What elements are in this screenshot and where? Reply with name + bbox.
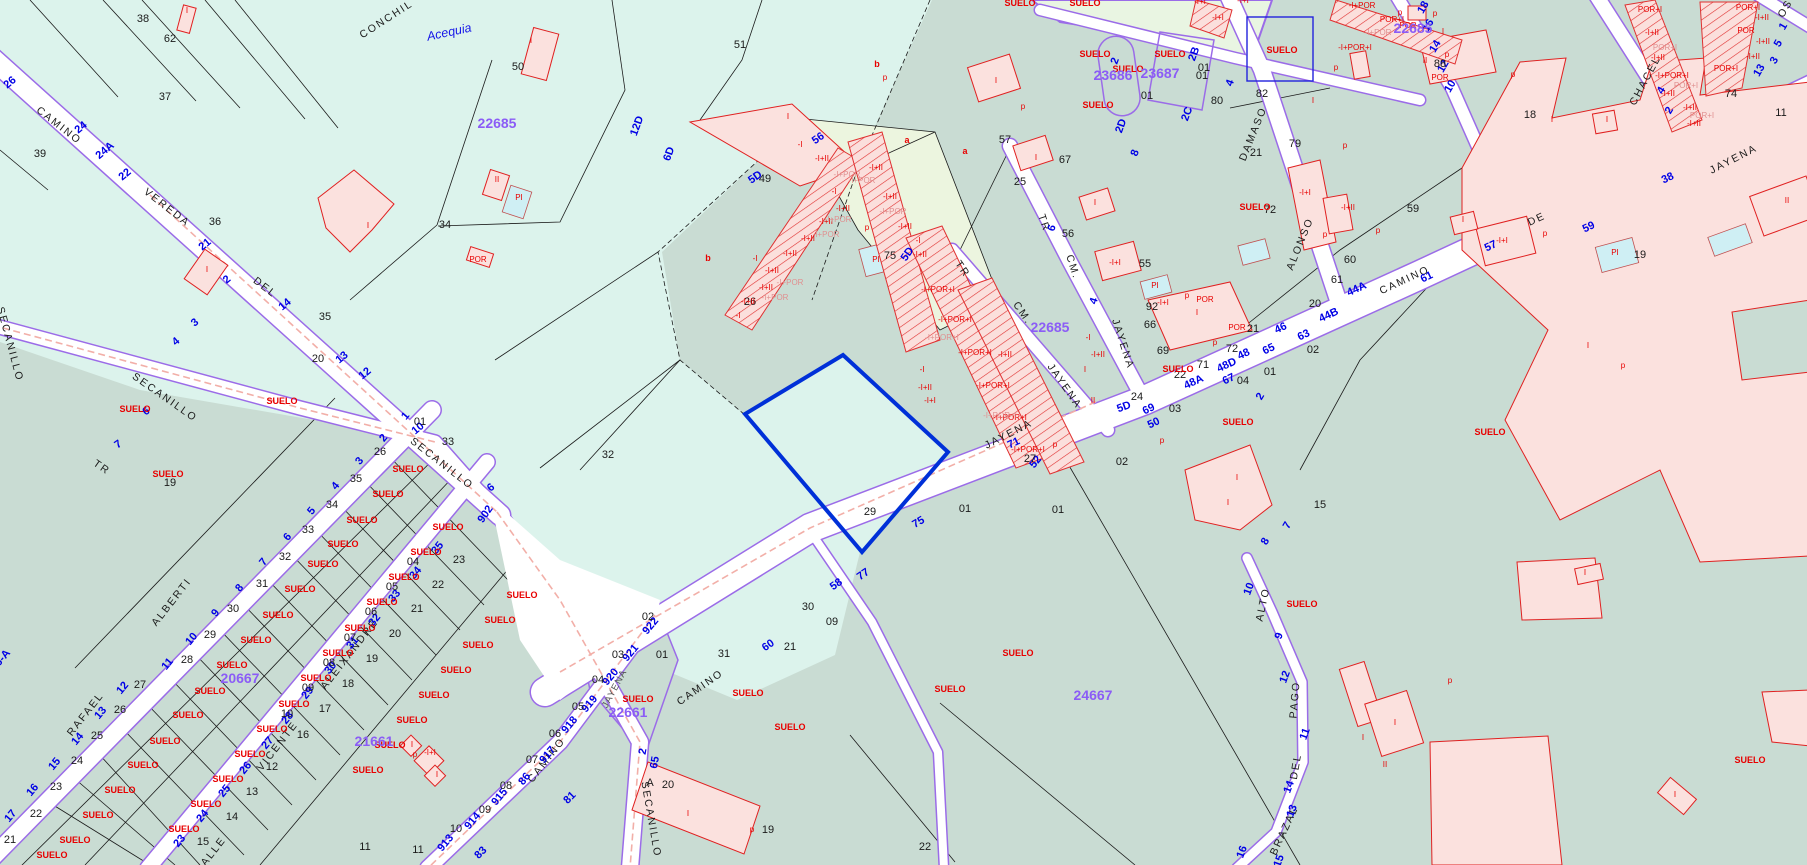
map-label: 21 [411, 603, 423, 615]
map-label: SUELO [327, 539, 358, 549]
map-label: -I [1086, 333, 1091, 342]
map-label: 07 [526, 754, 538, 766]
map-label: 20667 [221, 670, 260, 686]
map-label: SUELO [462, 640, 493, 650]
map-label: SUELO [432, 522, 463, 532]
map-label: p [413, 750, 418, 759]
map-label: 29 [864, 506, 876, 518]
map-label: 21 [1247, 323, 1259, 335]
map-label: POR [1228, 323, 1246, 332]
map-label: 01 [414, 416, 426, 428]
map-label: -I+POR [1349, 1, 1376, 10]
map-label: POR [1196, 295, 1214, 304]
map-label: -I+I [924, 396, 936, 405]
map-label: SUELO [36, 850, 67, 860]
map-label: p [1448, 676, 1453, 685]
map-label: -I+II [1661, 89, 1675, 98]
map-label: SUELO [152, 469, 183, 479]
map-label: SUELO [240, 635, 271, 645]
map-label: 19 [762, 824, 774, 836]
map-label: -I+II [1746, 52, 1760, 61]
map-label: 03 [1169, 403, 1181, 415]
map-label: 74 [1725, 88, 1737, 100]
map-label: SUELO [307, 559, 338, 569]
map-label: 11 [412, 844, 423, 856]
map-label: SUELO [484, 615, 515, 625]
map-label: PI [1611, 248, 1619, 257]
map-label: 22 [919, 841, 931, 853]
map-label: 15 [1314, 499, 1326, 511]
map-label: -I [753, 254, 758, 263]
map-label: -I [798, 140, 803, 149]
map-label: 01 [959, 503, 971, 515]
map-label: b [705, 253, 711, 263]
map-label: -I+II [1341, 203, 1355, 212]
map-label: 88 [1434, 58, 1446, 70]
map-label: -I+II [1687, 119, 1701, 128]
map-label: 35 [350, 473, 362, 485]
map-label: I [995, 76, 997, 85]
map-label: 04 [592, 674, 604, 686]
map-label: SUELO [284, 584, 315, 594]
map-label: -I+II [1755, 13, 1769, 22]
map-label: -I+POR [762, 293, 789, 302]
map-label: -I+POR [1365, 28, 1392, 37]
map-label: 24 [71, 755, 83, 767]
map-label: 49 [759, 173, 771, 185]
map-label: -I+POR [777, 278, 804, 287]
map-label: SUELO [1734, 755, 1765, 765]
map-label: 16 [297, 729, 309, 741]
map-label: -I+II [869, 163, 883, 172]
map-label: 37 [159, 91, 171, 103]
map-label: SUELO [1266, 45, 1297, 55]
map-label: 08 [323, 657, 335, 669]
map-label: 05 [386, 581, 398, 593]
map-label: 26 [114, 704, 126, 716]
map-label: 09 [826, 616, 838, 628]
map-label: 10 [450, 823, 462, 835]
map-label: 22661 [609, 704, 648, 720]
map-label: 24 [1131, 391, 1143, 403]
map-label: 19 [366, 653, 378, 665]
map-label: 65 [648, 755, 662, 769]
map-label: -I+POR+I [983, 411, 1017, 420]
map-label: 10 [281, 708, 293, 720]
map-label: 67 [1059, 154, 1071, 166]
map-label: -I [832, 187, 837, 196]
map-label: SUELO [256, 724, 287, 734]
map-label: 36 [209, 216, 221, 228]
map-label: II [1383, 760, 1387, 769]
map-label: I [1606, 115, 1608, 124]
map-label: 02 [1307, 344, 1319, 356]
map-label: -I+POR+I [925, 333, 959, 342]
map-label: 30 [802, 601, 814, 613]
map-label: 11 [1775, 107, 1786, 119]
map-label: 22 [432, 579, 444, 591]
map-label: 18 [1524, 109, 1536, 121]
map-label: p [1021, 102, 1026, 111]
map-label: SUELO [1286, 599, 1317, 609]
map-label: -I+I [1194, 0, 1206, 6]
map-label: SUELO [216, 660, 247, 670]
map-label: SUELO [1474, 427, 1505, 437]
map-label: I [1035, 153, 1037, 162]
map-label: 31 [256, 578, 268, 590]
map-label: I [1236, 473, 1238, 482]
map-label: SUELO [1004, 0, 1035, 8]
map-label: SUELO [82, 810, 113, 820]
map-label: p [1543, 229, 1548, 238]
map-label: SUELO [172, 710, 203, 720]
map-label: 01 [1196, 70, 1208, 82]
map-label: 18 [342, 678, 354, 690]
map-label: SUELO [344, 623, 375, 633]
map-label: p [1445, 50, 1450, 59]
map-label: SUELO [440, 665, 471, 675]
map-label: -I+II [815, 154, 829, 163]
map-label: -I+POR+I [976, 381, 1010, 390]
map-label: 33 [442, 436, 454, 448]
map-label: -I+II [759, 283, 773, 292]
map-label: 79 [1289, 138, 1301, 150]
map-label: 01 [1052, 504, 1064, 516]
map-label: SUELO [300, 673, 331, 683]
map-label: 09 [302, 682, 314, 694]
map-label: 62 [164, 33, 176, 45]
map-label: p [1433, 9, 1438, 18]
map-label: SUELO [410, 547, 441, 557]
map-label: SUELO [774, 722, 805, 732]
map-label: 20 [662, 779, 674, 791]
map-label: 01 [656, 649, 668, 661]
map-canvas[interactable]: CAMINOVEREDADELSECANILLOSECANILLOTRSECAN… [0, 0, 1807, 865]
map-label: 20 [1309, 298, 1321, 310]
map-label: I [1362, 733, 1364, 742]
map-label: 72 [1226, 343, 1238, 355]
map-label: 02 [1116, 456, 1128, 468]
map-label: -I+I [1212, 13, 1224, 22]
map-label: SUELO [622, 694, 653, 704]
map-label: -I+II [765, 266, 779, 275]
map-label: POR [1737, 26, 1755, 35]
map-label: 55 [1139, 258, 1151, 270]
map-label: SUELO [934, 684, 965, 694]
map-label: -I+POR [849, 176, 876, 185]
map-label: -I+I [424, 748, 436, 757]
map-label: 61 [1331, 274, 1343, 286]
map-label: 24667 [1074, 687, 1113, 703]
map-label: -I [920, 365, 925, 374]
map-label: 22685 [1394, 20, 1433, 36]
map-label: A [646, 777, 654, 789]
map-label: SUELO [119, 404, 150, 414]
map-label: I [1312, 96, 1314, 105]
map-label: SUELO [322, 648, 353, 658]
map-label: p [1334, 63, 1339, 72]
map-label: -I+II [913, 250, 927, 259]
map-label: SUELO [234, 749, 265, 759]
map-label: p [1398, 8, 1403, 17]
map-label: 21 [784, 641, 796, 653]
map-label: 32 [279, 551, 291, 563]
map-label: p [1621, 361, 1626, 370]
map-label: SUELO [372, 489, 403, 499]
map-label: SUELO [1079, 49, 1110, 59]
map-label: 28 [181, 654, 193, 666]
map-label: 31 [718, 648, 730, 660]
map-label: 04 [407, 556, 419, 568]
map-label: -I+POR+I [938, 315, 972, 324]
cadastral-map[interactable]: CAMINOVEREDADELSECANILLOSECANILLOTRSECAN… [0, 0, 1807, 865]
map-label: I [411, 740, 413, 749]
map-label: 05 [572, 701, 584, 713]
map-label: 02 [642, 611, 654, 623]
map-label: 23 [50, 781, 62, 793]
map-label: 60 [1344, 254, 1356, 266]
map-label: I [1551, 115, 1553, 124]
map-label: -I+II [883, 192, 897, 201]
map-label: 29 [204, 629, 216, 641]
map-label: SUELO [1002, 648, 1033, 658]
map-label: 38 [137, 13, 149, 25]
map-label: SUELO [262, 610, 293, 620]
map-label: 23686 [1094, 67, 1133, 83]
map-label: I [1442, 27, 1444, 36]
map-label: SUELO [732, 688, 763, 698]
map-label: 39 [34, 148, 46, 160]
map-label: 80 [1211, 95, 1223, 107]
map-label: 01 [1264, 366, 1276, 378]
map-label: SUELO [352, 765, 383, 775]
map-label: 04 [1237, 375, 1249, 387]
map-label: 09 [479, 804, 491, 816]
map-label: I [1462, 215, 1464, 224]
map-label: p [1213, 338, 1218, 347]
map-label: -I+POR+I [1011, 445, 1045, 454]
map-label: POR+I [1674, 81, 1698, 90]
map-label: 08 [500, 780, 512, 792]
map-label: SUELO [104, 785, 135, 795]
map-label: -I+II [898, 222, 912, 231]
map-label: SUELO [1154, 49, 1185, 59]
map-label: 22685 [478, 115, 517, 131]
map-label: p [883, 73, 888, 82]
map-label: 59 [1407, 203, 1419, 215]
map-label: -I+POR+I [921, 285, 955, 294]
map-label: -I+II [836, 204, 850, 213]
map-label: -I+POR+I [958, 348, 992, 357]
map-label: SUELO [59, 835, 90, 845]
map-label: POR+I [1714, 64, 1738, 73]
map-label: 03 [612, 649, 624, 661]
map-label: -I+II [1645, 28, 1659, 37]
map-label: 30 [227, 603, 239, 615]
map-label: POR+I [1653, 43, 1677, 52]
map-label: SUELO [1222, 417, 1253, 427]
map-label: SUELO [346, 515, 377, 525]
map-label: -I+POR [813, 230, 840, 239]
map-label: PI [872, 255, 880, 264]
map-label: I [1394, 718, 1396, 727]
map-label: I [1196, 308, 1198, 317]
map-label: 25 [91, 730, 103, 742]
map-label: p [1376, 226, 1381, 235]
map-label: 07 [344, 632, 356, 644]
map-label: -I+II [783, 249, 797, 258]
map-label: I [530, 36, 532, 45]
map-label: -I+II [1091, 350, 1105, 359]
map-label: 50 [512, 61, 524, 73]
map-label: SUELO [388, 572, 419, 582]
map-label: 34 [439, 219, 451, 231]
map-label: II [1423, 56, 1427, 65]
map-label: -I+II [1756, 37, 1770, 46]
map-label: I [687, 809, 689, 818]
map-label: 32 [602, 449, 614, 461]
map-label: p [1511, 70, 1516, 79]
map-label: -I+I [1496, 236, 1508, 245]
map-label: p [865, 223, 870, 232]
map-label: -I+I [1157, 298, 1169, 307]
map-label: -I+POR [880, 207, 907, 216]
map-label: b [874, 59, 880, 69]
map-label: 21661 [355, 733, 394, 749]
map-label: I [206, 265, 208, 274]
map-label: SUELO [278, 699, 309, 709]
map-label: SUELO [1162, 364, 1193, 374]
map-label: 17 [319, 703, 331, 715]
map-label: p [1185, 291, 1190, 300]
map-label: 06 [365, 606, 377, 618]
map-label: 27 [1024, 453, 1036, 465]
map-label: SUELO [266, 396, 297, 406]
map-label: 71 [1197, 359, 1209, 371]
map-label: 20 [389, 628, 401, 640]
map-label: 25 [1014, 176, 1026, 188]
map-label: SUELO [506, 590, 537, 600]
map-label: p [1053, 440, 1058, 449]
map-label: SUELO [366, 597, 397, 607]
map-label: 20 [312, 353, 324, 365]
map-label: 69 [1157, 345, 1169, 357]
map-label: SUELO [396, 715, 427, 725]
map-label: SUELO [1069, 0, 1100, 8]
map-label: POR+I [1736, 3, 1760, 12]
map-label: 21 [1250, 147, 1262, 159]
map-label: -I+II [918, 383, 932, 392]
map-label: POR [469, 255, 487, 264]
map-label: I [1227, 498, 1229, 507]
map-label: -I+POR+I [1338, 43, 1372, 52]
map-label: 33 [302, 524, 314, 536]
map-label: SUELO [168, 824, 199, 834]
map-label: 56 [1062, 228, 1074, 240]
map-label: SUELO [418, 690, 449, 700]
map-label: -I+I [1237, 0, 1249, 5]
map-label: 26 [374, 446, 386, 458]
map-label: 51 [734, 39, 746, 51]
map-label: 57 [999, 134, 1011, 146]
map-label: -I+POR+I [1655, 71, 1689, 80]
map-label: -I+II [1651, 53, 1665, 62]
map-label: II [1091, 396, 1095, 405]
map-label: 11 [359, 841, 370, 853]
map-label: 01 [1141, 90, 1153, 102]
map-label: p [750, 825, 755, 834]
map-label: I [367, 221, 369, 230]
map-label: I [1584, 568, 1586, 577]
map-label: PI [515, 193, 523, 202]
map-label: p [1343, 141, 1348, 150]
map-label: -I [916, 236, 921, 245]
map-label: 14 [226, 811, 238, 823]
map-label: I [1587, 341, 1589, 350]
map-label: 12 [266, 761, 278, 773]
map-label: SUELO [1239, 202, 1270, 212]
map-label: -I+II [998, 350, 1012, 359]
map-label: 34 [326, 499, 338, 511]
map-label: I [1084, 365, 1086, 374]
map-label: -I [736, 311, 741, 320]
map-label: 19 [1634, 249, 1646, 261]
map-label: I [186, 6, 188, 15]
map-label: I [436, 770, 438, 779]
map-label: 15 [197, 836, 209, 848]
map-label: SUELO [149, 736, 180, 746]
map-label: 35 [319, 311, 331, 323]
map-label: p [1323, 230, 1328, 239]
map-label: SUELO [392, 464, 423, 474]
map-label: 27 [134, 679, 146, 691]
map-label: I [1674, 790, 1676, 799]
map-label: POR+I [1638, 5, 1662, 14]
map-label: I [787, 112, 789, 121]
map-label: -I+I [1299, 188, 1311, 197]
map-label: SUELO [194, 686, 225, 696]
map-label: 21 [4, 834, 16, 846]
map-label: -I+POR [825, 215, 852, 224]
map-label: SUELO [190, 799, 221, 809]
map-label: II [1785, 196, 1789, 205]
map-label: 82 [1256, 88, 1268, 100]
map-label: 23687 [1141, 65, 1180, 81]
map-label: 22 [30, 808, 42, 820]
map-label: 22685 [1031, 319, 1070, 335]
map-label: 23 [453, 554, 465, 566]
map-label: -I+II [741, 297, 755, 306]
map-label: -I+I [1109, 258, 1121, 267]
map-label: SUELO [1082, 100, 1113, 110]
map-label: 66 [1144, 319, 1156, 331]
map-label: SUELO [127, 760, 158, 770]
map-label: POR [1431, 73, 1449, 82]
map-label: II [495, 175, 499, 184]
map-label: 06 [549, 728, 561, 740]
map-label: 75 [884, 250, 896, 262]
map-label: I [1094, 198, 1096, 207]
map-label: PI [1151, 281, 1159, 290]
map-label: 13 [246, 786, 258, 798]
map-label: SUELO [212, 774, 243, 784]
map-label: p [1160, 436, 1165, 445]
